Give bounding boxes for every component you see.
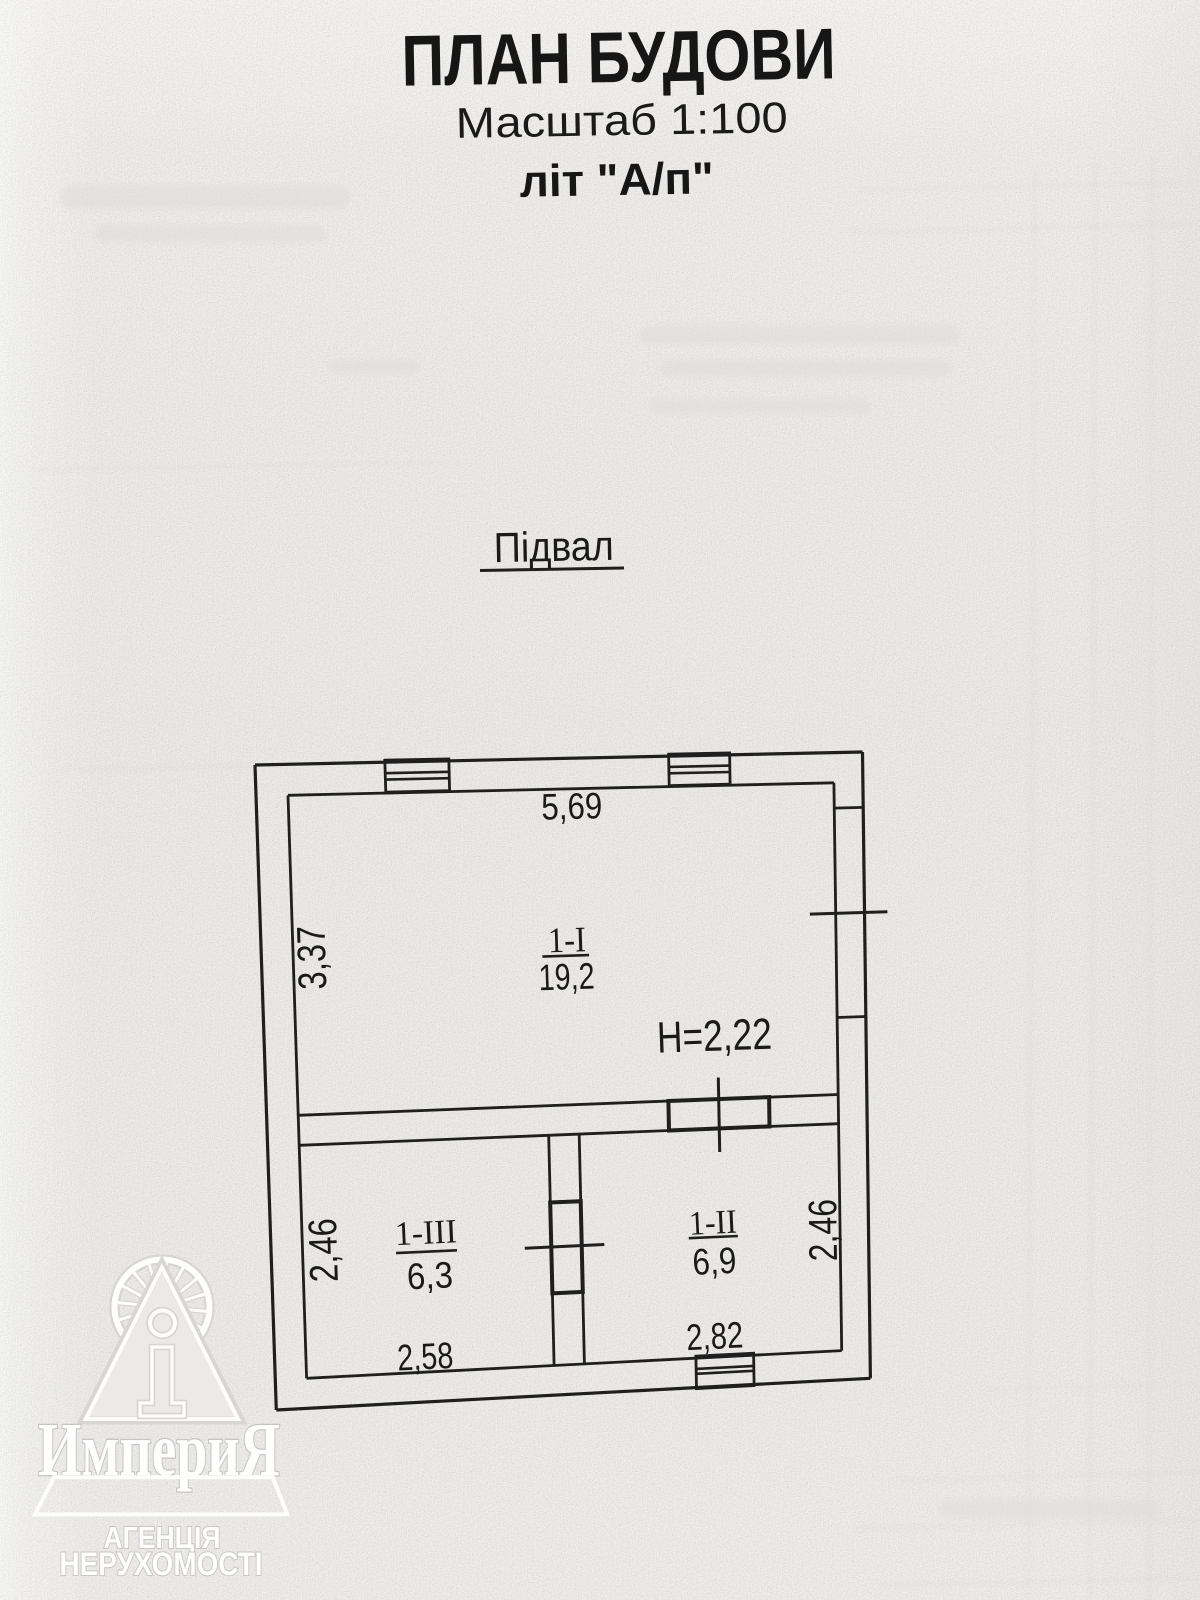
svg-text:3,37: 3,37 [288,925,335,990]
svg-text:1-III: 1-III [394,1213,458,1253]
svg-text:ПЛАН БУДОВИ: ПЛАН БУДОВИ [401,14,836,102]
svg-text:H=2,22: H=2,22 [656,1010,773,1063]
svg-text:Підвал: Підвал [493,522,614,571]
svg-text:2,82: 2,82 [685,1314,744,1358]
svg-text:НЕРУХОМОСТІ: НЕРУХОМОСТІ [60,1546,263,1582]
svg-text:5,69: 5,69 [541,785,603,827]
svg-text:Масштаб 1:100: Масштаб 1:100 [455,94,788,148]
svg-text:2,46: 2,46 [800,1199,846,1262]
svg-text:6,9: 6,9 [691,1240,737,1283]
svg-text:19,2: 19,2 [538,955,595,998]
svg-text:6,3: 6,3 [406,1254,454,1297]
svg-text:ИмпериЯ: ИмпериЯ [38,1408,280,1492]
svg-text:2,58: 2,58 [396,1335,454,1379]
svg-text:літ "А/п": літ "А/п" [519,152,714,206]
svg-text:2,46: 2,46 [300,1218,347,1283]
